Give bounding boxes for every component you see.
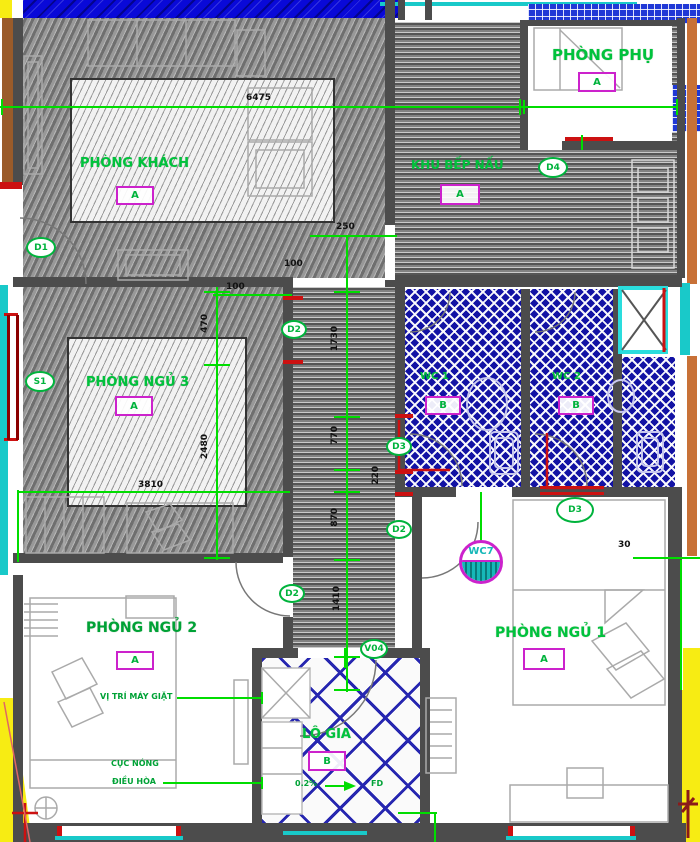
marker-d1: D1 bbox=[26, 237, 56, 258]
marker-wc7-text: WC7 bbox=[462, 543, 500, 562]
dim-100-bedroom3: 100 bbox=[226, 282, 245, 292]
entry-post-right bbox=[425, 0, 432, 20]
marker-v04: V04 bbox=[360, 639, 388, 659]
wall-loggia-right bbox=[420, 648, 430, 826]
bedroom1-tag-letter: A bbox=[540, 654, 548, 665]
wc1-tag-letter: B bbox=[439, 400, 447, 411]
bedroom3-label: PHÒNG NGỦ 3 bbox=[86, 375, 189, 390]
kitchen-tag-box: A bbox=[440, 184, 480, 205]
loggia-label: LÔ GIA bbox=[302, 727, 351, 742]
dim-1730: 1730 bbox=[330, 326, 340, 351]
wall-utility-left bbox=[520, 24, 528, 144]
bedroom1-tag-box: A bbox=[523, 648, 565, 670]
entry-post-left bbox=[398, 0, 405, 20]
washer-note: VỊ TRÍ MÁY GIẶT bbox=[100, 692, 173, 701]
teal-bottom-center bbox=[283, 831, 367, 835]
top-left-yellow-block bbox=[0, 0, 12, 18]
utility-room-label: PHÒNG PHỤ bbox=[552, 46, 654, 64]
wall-bedroom3-bottom bbox=[13, 553, 292, 563]
apartment-floor-plan: PHÒNG KHÁCH KHU BẾP NẤU PHÒNG PHỤ PHÒNG … bbox=[0, 0, 700, 842]
marker-d3-mid: D3 bbox=[386, 437, 412, 456]
marker-d3-room: D3 bbox=[556, 497, 594, 523]
dim-220: 220 bbox=[371, 466, 381, 485]
dim-3810: 3810 bbox=[138, 480, 163, 490]
top-facade-band bbox=[23, 0, 400, 18]
living-room-rug bbox=[70, 78, 335, 223]
dim-1410: 1410 bbox=[332, 586, 342, 611]
living-tag-letter: A bbox=[131, 190, 139, 201]
marker-wc7-hatch bbox=[462, 562, 500, 581]
bedroom3-tag-box: A bbox=[115, 396, 153, 416]
marker-d2-mid: D2 bbox=[386, 520, 412, 539]
wc2-tag-letter: B bbox=[572, 400, 580, 411]
dim-870: 870 bbox=[330, 508, 340, 527]
right-teal-patch bbox=[680, 283, 690, 355]
bedroom2-tag-box: A bbox=[116, 651, 154, 670]
kitchen-label: KHU BẾP NẤU bbox=[411, 158, 504, 172]
wc2-floor bbox=[530, 289, 613, 487]
utility-tag-letter: A bbox=[593, 77, 601, 88]
bedroom2-label: PHÒNG NGỦ 2 bbox=[86, 620, 197, 636]
dim-770: 770 bbox=[330, 426, 340, 445]
teal-bottom-right bbox=[506, 836, 636, 840]
ac-note-line2: ĐIỀU HÒA bbox=[112, 777, 156, 786]
wall-left-lower bbox=[13, 575, 23, 825]
teal-bottom-left bbox=[55, 836, 183, 840]
slope-note: 0.2% bbox=[295, 779, 317, 788]
dim-100-corridor: 100 bbox=[284, 259, 303, 269]
bedroom1-label: PHÒNG NGỦ 1 bbox=[495, 625, 606, 641]
floor-drain-note: FD bbox=[371, 779, 383, 788]
wall-living-bedroom3 bbox=[13, 277, 293, 287]
marker-d4: D4 bbox=[538, 157, 568, 178]
dim-2480: 2480 bbox=[200, 434, 210, 459]
wc1-floor bbox=[405, 289, 521, 487]
wall-wc-bottom bbox=[395, 487, 682, 497]
door-gap-utility bbox=[528, 141, 562, 150]
right-orange-strip-upper bbox=[687, 18, 697, 284]
door-gap-living-kitchen bbox=[385, 225, 395, 280]
wall-corridor-right bbox=[395, 285, 405, 490]
kitchen-tag-letter: A bbox=[456, 189, 464, 200]
ac-note-line1: CỤC NÓNG bbox=[111, 759, 159, 768]
wall-bedroom1-left bbox=[412, 497, 422, 652]
wall-utility-top bbox=[520, 20, 680, 26]
marker-wc7: WC7 bbox=[459, 540, 503, 584]
living-room-label: PHÒNG KHÁCH bbox=[80, 156, 189, 171]
door-gap-wc-bottom bbox=[456, 487, 512, 497]
wall-wc-divider bbox=[521, 289, 530, 487]
dim-total-width: 6475 bbox=[246, 93, 271, 103]
dim-470: 470 bbox=[200, 314, 210, 333]
bedroom3-tag-letter: A bbox=[130, 401, 138, 412]
wall-right-upper bbox=[677, 18, 685, 278]
wall-left-upper bbox=[13, 18, 23, 185]
dim-30: 30 bbox=[618, 540, 631, 550]
wc-right-floor bbox=[622, 357, 675, 487]
right-orange-strip-lower bbox=[687, 356, 697, 556]
marker-d2-low: D2 bbox=[279, 584, 305, 603]
shaft-box bbox=[618, 286, 668, 354]
wc2-label: WC 2 bbox=[552, 371, 581, 382]
bedroom2-tag-letter: A bbox=[131, 655, 139, 666]
loggia-tag-letter: B bbox=[323, 756, 331, 767]
right-yellow-strip bbox=[683, 648, 700, 692]
living-tag-box: A bbox=[116, 186, 154, 205]
wc1-tag-box: B bbox=[425, 396, 461, 415]
wall-right-lower bbox=[668, 487, 682, 823]
wc2-tag-box: B bbox=[558, 396, 594, 415]
wc1-label: WC 1 bbox=[420, 371, 449, 382]
left-window-teal bbox=[0, 285, 8, 575]
marker-d2-top: D2 bbox=[281, 320, 307, 339]
marker-s1: S1 bbox=[25, 371, 55, 392]
loggia-tag-box: B bbox=[308, 751, 346, 771]
dim-250: 250 bbox=[336, 222, 355, 232]
wall-loggia-left bbox=[252, 648, 262, 826]
utility-tag-box: A bbox=[578, 72, 616, 92]
left-brown-strip bbox=[2, 18, 13, 184]
